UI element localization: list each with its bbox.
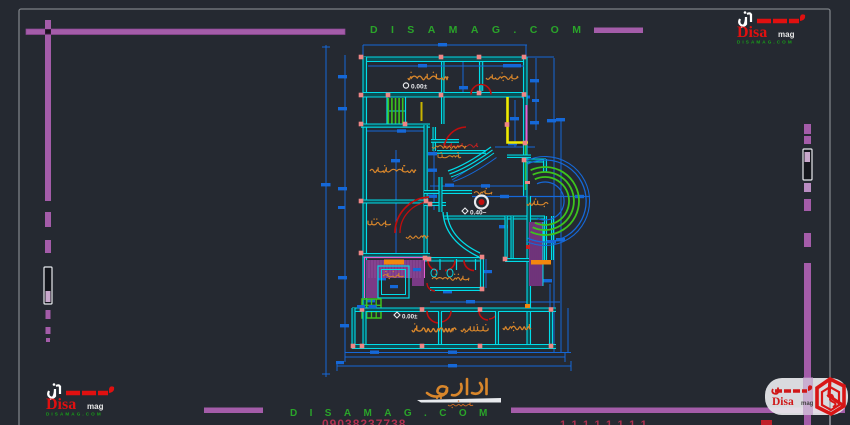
svg-text:Disa: Disa [772,396,794,408]
svg-text:0.00±: 0.00± [402,314,418,321]
svg-text:0.00±: 0.00± [411,84,428,91]
svg-text:DISAMAG.COM: DISAMAG.COM [46,412,103,417]
svg-text:mag: mag [87,402,104,411]
svg-text:Disa: Disa [737,24,767,41]
svg-text:11111111: 11111111 [560,419,653,425]
svg-text:0.40−: 0.40− [470,210,487,217]
svg-text:mag: mag [778,30,795,39]
svg-text:09038237738: 09038237738 [322,417,406,425]
svg-text:Disa: Disa [46,396,76,413]
svg-text:DISAMAG.COM: DISAMAG.COM [737,40,794,45]
svg-text:mag: mag [801,401,814,407]
svg-text:DISAMAG.COM: DISAMAG.COM [370,24,594,36]
